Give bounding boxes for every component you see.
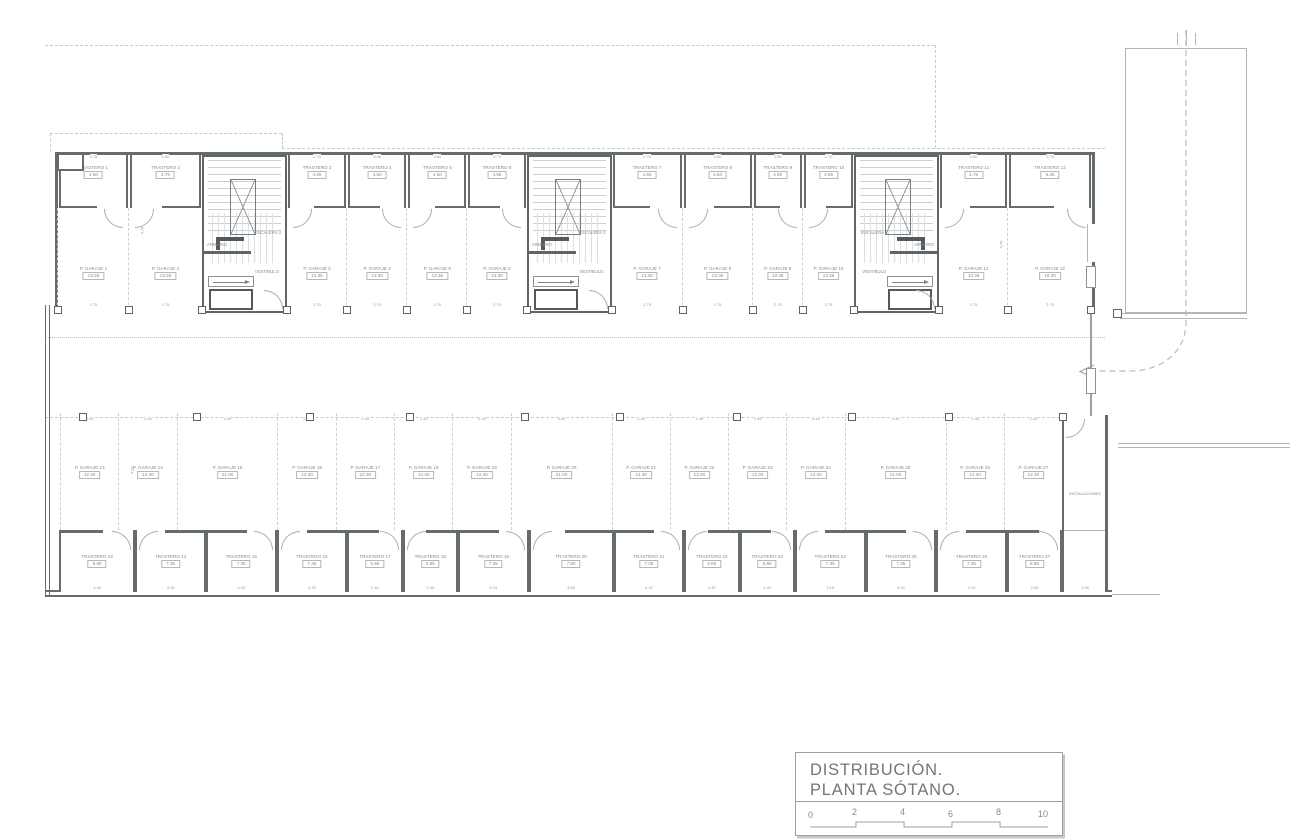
scale-tick: 8 bbox=[996, 807, 1001, 817]
duct-shaft bbox=[57, 152, 84, 171]
dimension-label: 4.90 bbox=[129, 467, 134, 475]
garage-door-opening bbox=[1087, 224, 1096, 262]
column-pillar bbox=[403, 306, 411, 314]
column-pillar bbox=[733, 413, 741, 421]
column-pillar bbox=[283, 306, 291, 314]
column-pillar bbox=[1087, 306, 1095, 314]
column-pillar bbox=[343, 306, 351, 314]
column-pillar bbox=[935, 306, 943, 314]
column-pillar bbox=[463, 306, 471, 314]
scale-bar-graphic: 0 2 4 6 8 10 bbox=[802, 805, 1054, 835]
column-pillar bbox=[848, 413, 856, 421]
scale-tick: 0 bbox=[808, 810, 813, 820]
scale-tick: 4 bbox=[900, 807, 905, 817]
column-pillar bbox=[616, 413, 624, 421]
column-pillar bbox=[523, 306, 531, 314]
column-pillar bbox=[850, 306, 858, 314]
scale-bar: 0 2 4 6 8 10 bbox=[796, 802, 1062, 840]
title-block: DISTRIBUCIÓN. PLANTA SÓTANO. 0 2 4 6 8 1… bbox=[795, 752, 1063, 836]
drawing-title-line1: DISTRIBUCIÓN. bbox=[810, 760, 1062, 780]
drawing-title: DISTRIBUCIÓN. PLANTA SÓTANO. bbox=[796, 753, 1062, 802]
floor-plan-canvas: 2.78 TRASTERO 1 4.50 P. GARAJE 1 13.36 2… bbox=[0, 0, 1290, 840]
column-pillar bbox=[679, 306, 687, 314]
column-pillar bbox=[306, 413, 314, 421]
column-pillar bbox=[1059, 413, 1067, 421]
wall-pier bbox=[1086, 368, 1096, 394]
column-pillar bbox=[125, 306, 133, 314]
wall-pier bbox=[1086, 266, 1096, 288]
drawing-title-line2: PLANTA SÓTANO. bbox=[810, 780, 1062, 800]
column-pillar bbox=[1004, 306, 1012, 314]
dimension-label: 4.75 bbox=[139, 227, 144, 235]
scale-tick: 10 bbox=[1038, 809, 1048, 819]
column-pillar bbox=[198, 306, 206, 314]
column-pillar bbox=[608, 306, 616, 314]
column-pillar bbox=[79, 413, 87, 421]
column-pillar bbox=[945, 413, 953, 421]
column-pillar bbox=[799, 306, 807, 314]
column-pillar bbox=[521, 413, 529, 421]
scale-tick: 6 bbox=[948, 809, 953, 819]
column-pillar bbox=[749, 306, 757, 314]
column-pillar bbox=[54, 306, 62, 314]
column-pillar bbox=[406, 413, 414, 421]
column-pillar bbox=[193, 413, 201, 421]
scale-tick: 2 bbox=[852, 807, 857, 817]
dimension-label: 4.70 bbox=[998, 241, 1003, 249]
